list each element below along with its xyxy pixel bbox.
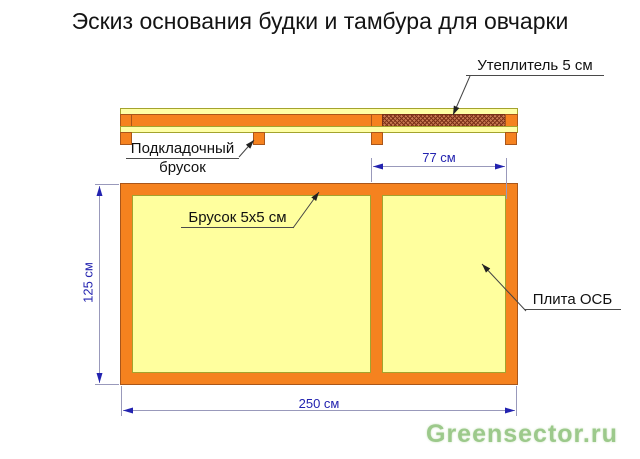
dimension-height-label: 125 см [81, 253, 96, 313]
dimension-inner-width-label: 77 см [372, 150, 506, 165]
dimension-total-width-label: 250 см [252, 396, 386, 411]
osb-label: Плита ОСБ [524, 291, 621, 310]
sketch-canvas: Эскиз основания будки и тамбура для овча… [0, 0, 640, 459]
osb-panel-right [382, 195, 506, 373]
osb-bottom-sheet [120, 126, 518, 133]
backing-bar [505, 132, 517, 145]
backing-bar-label: Подкладочный [126, 140, 239, 159]
bar-size-label: Брусок 5х5 см [181, 209, 294, 228]
leader-backing [239, 140, 254, 157]
backing-bar-label-2: брусок [126, 159, 239, 176]
watermark: Greensector.ru [426, 420, 618, 449]
backing-bar [371, 132, 383, 145]
insulation-label: Утеплитель 5 см [466, 57, 604, 76]
page-title: Эскиз основания будки и тамбура для овча… [0, 8, 640, 35]
backing-bar [253, 132, 265, 145]
